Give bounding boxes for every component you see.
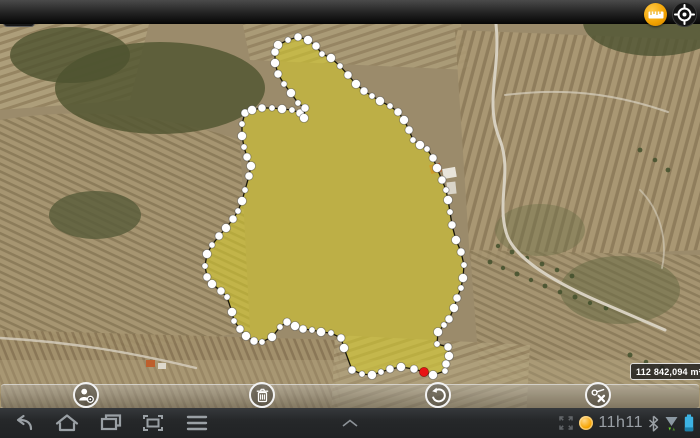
vertex-handle[interactable] (348, 366, 356, 374)
vertex-handle[interactable] (247, 162, 256, 171)
vertex-handle[interactable] (344, 71, 352, 79)
vertex-handle[interactable] (309, 327, 315, 333)
vertex-handle[interactable] (295, 100, 301, 106)
vertex-handle[interactable] (459, 274, 468, 283)
vertex-handle[interactable] (242, 332, 251, 341)
vertex-handle[interactable] (447, 209, 453, 215)
vertex-handle[interactable] (416, 141, 425, 150)
vertex-handle[interactable] (217, 287, 225, 295)
vertex-handle[interactable] (442, 360, 450, 368)
vertex-handle[interactable] (444, 343, 452, 351)
vertex-handle[interactable] (394, 108, 402, 116)
locate-button[interactable] (672, 2, 697, 27)
delete-button[interactable] (249, 382, 275, 408)
vertex-handle[interactable] (410, 137, 416, 143)
system-navigation-bar: 11h11 (0, 408, 700, 438)
vertex-handle[interactable] (317, 328, 326, 337)
vertex-handle[interactable] (443, 187, 449, 193)
vertex-handle[interactable] (202, 263, 208, 269)
vertex-handle[interactable] (287, 89, 296, 98)
battery-icon (684, 414, 694, 432)
quick-panel-chevron[interactable] (338, 409, 362, 437)
vertex-handle[interactable] (243, 153, 251, 161)
vertex-handle[interactable] (278, 105, 287, 114)
vertex-handle[interactable] (378, 369, 384, 375)
vertex-handle[interactable] (228, 308, 237, 317)
vertex-handle[interactable] (242, 187, 248, 193)
vertex-handle[interactable] (285, 37, 291, 43)
vertex-handle[interactable] (360, 87, 368, 95)
vertex-handle[interactable] (312, 42, 320, 50)
vertex-handle[interactable] (397, 363, 406, 372)
app-screen: 112 842,094 m² (0, 0, 700, 438)
vertex-handle[interactable] (229, 215, 237, 223)
vertex-handle[interactable] (241, 144, 247, 150)
screen-capture-button[interactable] (132, 408, 174, 438)
vertex-handle[interactable] (457, 248, 465, 256)
gps-crosshair-icon (674, 4, 695, 25)
vertex-handle[interactable] (203, 250, 212, 259)
vertex-handle[interactable] (319, 51, 325, 57)
bluetooth-icon (648, 415, 659, 432)
user-location-button[interactable] (73, 382, 99, 408)
area-measurement-label: 112 842,094 m² (630, 363, 700, 380)
vertex-handle[interactable] (271, 59, 280, 68)
delete-vertex-icon (590, 387, 607, 404)
user-location-icon (78, 387, 95, 404)
ruler-icon (648, 9, 664, 21)
fullscreen-icon[interactable] (558, 415, 574, 431)
vertex-handle[interactable] (442, 368, 448, 374)
status-area: 11h11 (558, 408, 694, 438)
measure-button[interactable] (644, 3, 667, 26)
undo-button[interactable] (425, 382, 451, 408)
vertex-handle[interactable] (239, 121, 245, 127)
vertex-handle[interactable] (441, 322, 447, 328)
vertex-handle[interactable] (433, 164, 442, 173)
vertex-handle[interactable] (444, 196, 453, 205)
vertex-handle[interactable] (445, 315, 453, 323)
vertex-handle[interactable] (410, 365, 418, 373)
vertex-handle[interactable] (209, 242, 215, 248)
vertex-handle[interactable] (236, 325, 244, 333)
menu-icon (184, 413, 210, 433)
vertex-handle[interactable] (268, 333, 277, 342)
vertex-handle[interactable] (376, 97, 385, 106)
vertex-handle[interactable] (438, 176, 446, 184)
vertex-handle[interactable] (434, 341, 440, 347)
vertex-handle[interactable] (258, 104, 266, 112)
vertex-handle[interactable] (299, 325, 307, 333)
vertex-handle[interactable] (274, 70, 282, 78)
vertex-handle[interactable] (434, 328, 443, 337)
recent-apps-button[interactable] (90, 408, 132, 438)
vertex-handle[interactable] (304, 36, 313, 45)
vertex-handle[interactable] (283, 318, 291, 326)
vertex-handle[interactable] (277, 324, 283, 330)
vertex-handle[interactable] (337, 63, 343, 69)
top-app-bar (0, 0, 700, 24)
vertex-handle[interactable] (231, 318, 237, 324)
measure-toolbar (1, 384, 699, 409)
notification-app-icon[interactable] (579, 416, 593, 430)
vertex-handle[interactable] (429, 371, 438, 380)
vertex-handle[interactable] (445, 352, 454, 361)
selected-vertex-handle[interactable] (419, 367, 428, 376)
vertex-handle[interactable] (248, 106, 257, 115)
vertex-handle[interactable] (235, 208, 241, 214)
signal-icon (664, 415, 679, 432)
vertex-handle[interactable] (337, 334, 345, 342)
screen-capture-icon (140, 413, 166, 433)
menu-button[interactable] (176, 408, 218, 438)
back-icon (10, 413, 36, 433)
vertex-handle[interactable] (386, 365, 394, 373)
clock[interactable]: 11h11 (598, 408, 643, 438)
back-button[interactable] (2, 408, 44, 438)
undo-icon (430, 387, 446, 403)
vertex-handle[interactable] (458, 285, 464, 291)
vertex-handle[interactable] (452, 236, 461, 245)
vertex-handle[interactable] (424, 146, 430, 152)
vertex-handle[interactable] (291, 322, 300, 331)
vertex-handle[interactable] (300, 114, 309, 123)
vertex-handle[interactable] (289, 107, 295, 113)
vertex-handle[interactable] (294, 33, 302, 41)
home-icon (54, 413, 80, 433)
vertex-handle[interactable] (250, 337, 258, 345)
vertex-handle[interactable] (359, 371, 365, 377)
vertex-handle[interactable] (453, 294, 461, 302)
vertex-handle[interactable] (259, 339, 265, 345)
recent-apps-icon (98, 413, 124, 433)
vertex-handle[interactable] (301, 104, 309, 112)
vertex-handle[interactable] (281, 81, 287, 87)
vertex-handle[interactable] (448, 221, 456, 229)
chevron-up-icon (340, 418, 360, 428)
vertex-handle[interactable] (269, 105, 275, 111)
vertex-handle[interactable] (245, 172, 253, 180)
satellite-map[interactable] (0, 0, 700, 438)
vertex-handle[interactable] (222, 224, 231, 233)
vertex-handle[interactable] (215, 232, 223, 240)
vertex-handle[interactable] (369, 93, 375, 99)
vertex-handle[interactable] (327, 54, 336, 63)
vertex-handle[interactable] (429, 154, 437, 162)
vertex-handle[interactable] (328, 330, 334, 336)
vertex-handle[interactable] (368, 371, 377, 380)
home-button[interactable] (46, 408, 88, 438)
vertex-handle[interactable] (461, 262, 467, 268)
vertex-handle[interactable] (271, 48, 279, 56)
vertex-handle[interactable] (352, 80, 361, 89)
vertex-handle[interactable] (203, 273, 211, 281)
vertex-handle[interactable] (238, 132, 247, 141)
vertex-handle[interactable] (340, 344, 349, 353)
vertex-handle[interactable] (405, 126, 413, 134)
vertex-handle[interactable] (400, 116, 409, 125)
delete-vertex-button[interactable] (585, 382, 611, 408)
trash-icon (255, 388, 270, 403)
vertex-handle[interactable] (450, 304, 459, 313)
vertex-handle[interactable] (238, 197, 247, 206)
vertex-handle[interactable] (387, 103, 393, 109)
vertex-handle[interactable] (224, 294, 230, 300)
